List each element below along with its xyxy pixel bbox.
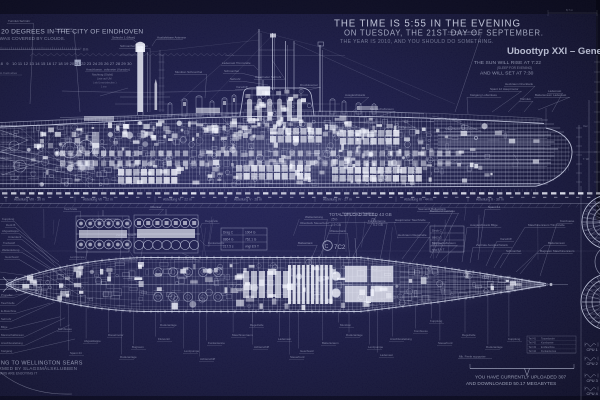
svg-text:Kupplung: Kupplung <box>430 319 443 323</box>
svg-text:PERFORMED BY SLAGSMÅLSKLUBBEN: PERFORMED BY SLAGSMÅLSKLUBBEN <box>0 365 77 371</box>
svg-text:Bilge: Bilge <box>1 325 8 329</box>
svg-text:Ruderanlage: Ruderanlage <box>346 333 363 337</box>
svg-text:(SLEEP FOR EVENING): (SLEEP FOR EVENING) <box>497 66 532 70</box>
svg-text:Vorschiff: Vorschiff <box>500 237 512 241</box>
svg-text:26: 26 <box>104 61 109 66</box>
svg-text:Zentrale Spant 44: Zentrale Spant 44 <box>116 233 140 237</box>
svg-text:1 xxv: 1 xxv <box>101 86 107 89</box>
svg-text:27: 27 <box>110 61 115 66</box>
svg-text:Dieselmotor: Dieselmotor <box>108 333 123 337</box>
svg-text:762.1 G: 762.1 G <box>245 238 257 242</box>
svg-text:Ruderanlage: Ruderanlage <box>160 323 177 327</box>
svg-text:Maschinenraum: Maschinenraum <box>232 333 253 337</box>
svg-text:Anschlussleitung: Anschlussleitung <box>175 257 196 261</box>
svg-text:20: 20 <box>70 61 75 66</box>
svg-text:Wassertank: Wassertank <box>330 229 346 233</box>
svg-text:Funkantenne: Funkantenne <box>541 349 557 353</box>
svg-text:( als Umsetzbecken ): ( als Umsetzbecken ) <box>93 82 117 85</box>
svg-text:Turmluk Sehrohr: Turmluk Sehrohr <box>8 19 30 23</box>
svg-text:Abgasklappe: Abgasklappe <box>84 339 101 343</box>
svg-text:Abgasklappe: Abgasklappe <box>1 124 18 128</box>
svg-text:AND DOWNLOADED 50.17 MEGABYTES: AND DOWNLOADED 50.17 MEGABYTES <box>466 381 556 386</box>
svg-text:Flutventil: Flutventil <box>158 337 170 341</box>
svg-text:Teil 41: Teil 41 <box>529 337 537 341</box>
svg-text:CPU 4: CPU 4 <box>587 392 598 396</box>
svg-text:Lademast Trimmzelle: Lademast Trimmzelle <box>222 61 251 65</box>
svg-text:Tauchzelle: Tauchzelle <box>64 207 78 211</box>
svg-text:ON TUESDAY, THE 21ST DAY OF SE: ON TUESDAY, THE 21ST DAY OF SEPTEMBER. <box>344 29 544 38</box>
svg-text:Abteilung IV · 27 m: Abteilung IV · 27 m <box>323 198 352 202</box>
svg-text:Sehrohr: Sehrohr <box>230 77 241 81</box>
svg-text:Regelzelle: Regelzelle <box>462 333 476 337</box>
svg-text:Drag C: Drag C <box>223 231 234 235</box>
svg-text:Anschlussm. voltmeter (Vorschn: Anschlussm. voltmeter (Vorschn) <box>86 68 130 72</box>
svg-text:CPU 2: CPU 2 <box>587 362 598 366</box>
svg-text:Steuerbord: Steuerbord <box>290 355 305 359</box>
svg-text:28: 28 <box>116 61 121 66</box>
svg-text:16: 16 <box>47 61 52 66</box>
svg-text:A. Funk wires: A. Funk wires <box>0 71 18 75</box>
svg-text:THE YEAR IS 2010, AND YOU SHOU: THE YEAR IS 2010, AND YOU SHOULD DO SOME… <box>340 39 494 45</box>
svg-text:Geschuetz: Geschuetz <box>5 255 19 259</box>
svg-text:Munition: Munition <box>340 323 351 327</box>
svg-text:T. Wl: T. Wl <box>583 157 589 161</box>
svg-text:AND WILL SET AT 7:30: AND WILL SET AT 7:30 <box>480 71 534 77</box>
svg-text:CPU 3: CPU 3 <box>587 379 598 383</box>
svg-text:10: 10 <box>12 61 17 66</box>
svg-text:Abteilung VIII · 30 m: Abteilung VIII · 30 m <box>14 198 45 202</box>
svg-text:Kombuese: Kombuese <box>414 329 428 333</box>
svg-text:Druckkoerper: Druckkoerper <box>300 83 318 87</box>
svg-text:Kielgang: Kielgang <box>1 349 13 353</box>
svg-text:Ruderanlage: Ruderanlage <box>486 345 503 349</box>
svg-text:Bugraum Maschinenraum: Bugraum Maschinenraum <box>540 249 575 253</box>
svg-text:Munition Schnorchel: Munition Schnorchel <box>175 70 203 74</box>
svg-text:Ausgleichstank Bilge: Ausgleichstank Bilge <box>470 223 498 227</box>
svg-text:Dieselmotor: Dieselmotor <box>1 164 16 168</box>
svg-text:Hauptmotor Tauchzelle: Hauptmotor Tauchzelle <box>395 218 426 222</box>
svg-text:Ruderanlage: Ruderanlage <box>120 355 137 359</box>
svg-text:Wassertank: Wassertank <box>1 148 17 152</box>
svg-text:E-Maschine: E-Maschine <box>120 257 135 261</box>
svg-text:Funkantenne: Funkantenne <box>55 27 73 31</box>
svg-text:1004 G: 1004 G <box>245 231 256 235</box>
svg-text:Lademast: Lademast <box>380 353 393 357</box>
svg-text:Tauchzelle: Tauchzelle <box>1 301 15 305</box>
svg-text:Lenzpumpe: Lenzpumpe <box>70 255 85 259</box>
svg-text:Ballasttank: Ballasttank <box>298 241 313 245</box>
svg-text:Mannschaftsraum: Mannschaftsraum <box>1 333 25 337</box>
svg-text:Geschuetz Flutventil: Geschuetz Flutventil <box>330 125 358 129</box>
svg-text:Heckraum Regelzelle: Heckraum Regelzelle <box>398 233 427 237</box>
svg-text:8 m: 8 m <box>83 48 89 52</box>
svg-text:Nachtrag (Stybd): Nachtrag (Stybd) <box>92 73 113 77</box>
svg-text:Regelzelle: Regelzelle <box>250 323 264 327</box>
svg-text:22: 22 <box>81 61 86 66</box>
svg-text:21: 21 <box>75 61 80 66</box>
svg-text:Flak 20mm Treibstoff: Flak 20mm Treibstoff <box>448 30 476 34</box>
svg-text:Teil 42: Teil 42 <box>529 341 537 345</box>
svg-text:Oec: Oec <box>583 124 588 128</box>
svg-text:Geschuetz Getriebe: Geschuetz Getriebe <box>92 217 119 221</box>
svg-text:24: 24 <box>93 61 98 66</box>
svg-text:0.9 GB: 0.9 GB <box>331 223 341 227</box>
svg-text:Achterschiff: Achterschiff <box>254 345 269 349</box>
svg-text:Funkantenne: Funkantenne <box>208 241 225 245</box>
svg-text:Spant 44: Spant 44 <box>1 132 13 136</box>
svg-text:Geschuetz: Geschuetz <box>300 349 314 353</box>
svg-text:13: 13 <box>29 61 34 66</box>
svg-text:E-Maschine: E-Maschine <box>541 345 555 349</box>
svg-text:Wellenleitung: Wellenleitung <box>305 215 323 219</box>
svg-text:Deck C: Deck C <box>432 229 443 233</box>
svg-text:7C2: 7C2 <box>334 244 346 251</box>
svg-text:Abteilung VII · 22 m: Abteilung VII · 22 m <box>83 198 113 202</box>
svg-text:Olbunker: Olbunker <box>150 205 161 209</box>
svg-text:Getriebe: Getriebe <box>1 140 12 144</box>
svg-text:Steuerbord: Steuerbord <box>1 172 16 176</box>
svg-text:Deck B: Deck B <box>6 223 15 227</box>
svg-text:8864 G: 8864 G <box>223 238 234 242</box>
svg-text:15: 15 <box>41 61 46 66</box>
svg-text:Backbord Getriebe: Backbord Getriebe <box>430 209 455 213</box>
svg-text:YOU HAVE CURRENTLY UPLOADED 3: YOU HAVE CURRENTLY UPLOADED 307 <box>475 374 567 379</box>
svg-text:Schnorchel: Schnorchel <box>506 249 521 253</box>
svg-text:Kombuese: Kombuese <box>541 341 554 345</box>
svg-text:Maschinenraum Trimmzelle: Maschinenraum Trimmzelle <box>528 223 565 227</box>
svg-text:Schnorchel: Schnorchel <box>224 69 239 73</box>
svg-text:Batterieraum: Batterieraum <box>322 341 339 345</box>
svg-text:Funkantenne: Funkantenne <box>368 219 386 223</box>
svg-text:Spant 44: Spant 44 <box>488 205 500 209</box>
svg-text:217.5 s: 217.5 s <box>223 245 234 249</box>
svg-text:Funkantenne: Funkantenne <box>208 341 225 345</box>
svg-text:Oberdeck Steuerbord: Oberdeck Steuerbord <box>300 221 329 225</box>
svg-text:Anschlussleitung: Anschlussleitung <box>1 341 23 345</box>
svg-text:Steuerbord: Steuerbord <box>215 125 230 129</box>
svg-text:Ausfahrbare Antenne: Ausfahrbare Antenne <box>157 36 186 40</box>
svg-text:Abteilung VI · 22 m: Abteilung VI · 22 m <box>163 198 192 202</box>
svg-text:E-Maschine: E-Maschine <box>1 309 17 313</box>
svg-text:Unterdeck: Unterdeck <box>8 235 22 239</box>
svg-text:Mk. Feele supporter: Mk. Feele supporter <box>459 355 486 359</box>
svg-text:Abteilung V · 28 m: Abteilung V · 28 m <box>234 198 262 202</box>
svg-text:Munition: Munition <box>1 156 12 160</box>
svg-text:CPU 1: CPU 1 <box>587 348 598 352</box>
svg-text:Schnorchel Bugraum: Schnorchel Bugraum <box>120 44 149 48</box>
svg-text:vngl 8.9 T: vngl 8.9 T <box>245 245 259 249</box>
svg-text:Hauptruder Sehrohr: Hauptruder Sehrohr <box>255 75 282 79</box>
svg-text:Kielgang Lufteinlass: Kielgang Lufteinlass <box>470 93 497 97</box>
svg-text:Steuerbord: Steuerbord <box>438 341 453 345</box>
svg-text:Wellenleitung: Wellenleitung <box>2 248 20 252</box>
svg-text:Ausgleichstank: Ausgleichstank <box>345 93 366 97</box>
svg-text:MY EARS ARE ENJOYING IT: MY EARS ARE ENJOYING IT <box>0 371 37 375</box>
svg-text:Abgasklappe: Abgasklappe <box>2 229 19 233</box>
svg-text:Torpedorohr: Torpedorohr <box>260 117 276 121</box>
svg-text:Abteilung II · 30 m: Abteilung II · 30 m <box>476 198 504 202</box>
svg-text:5.2 GB: 5.2 GB <box>373 223 383 227</box>
svg-text:25%: 25% <box>331 218 338 222</box>
svg-text:Kombuese: Kombuese <box>58 327 72 331</box>
svg-text:Bugraum: Bugraum <box>132 345 144 349</box>
svg-text:12: 12 <box>24 61 29 66</box>
svg-text:Propeller: Propeller <box>1 293 13 297</box>
svg-text:Vorschiff: Vorschiff <box>236 85 248 89</box>
svg-text:Regelzelle: Regelzelle <box>205 219 219 223</box>
svg-text:23: 23 <box>87 61 92 66</box>
svg-text:Sehrohr: Sehrohr <box>1 317 11 321</box>
svg-text:Mannschaftsraum: Mannschaftsraum <box>370 107 394 111</box>
svg-text:Funkantenne: Funkantenne <box>398 125 416 129</box>
svg-text:C: C <box>325 244 329 250</box>
svg-text:30: 30 <box>127 61 132 66</box>
svg-text:Abteilung III · 44 m: Abteilung III · 44 m <box>404 198 433 202</box>
svg-text:29: 29 <box>121 61 126 66</box>
svg-text:Uboottyp XXI – Generalplan: Uboottyp XXI – Generalplan <box>507 46 600 57</box>
svg-text:Treibstoff: Treibstoff <box>3 241 15 245</box>
svg-text:Spant 44: Spant 44 <box>70 351 82 355</box>
svg-text:Heckraum Drucktank: Heckraum Drucktank <box>505 82 534 86</box>
svg-text:Steuerbord Torpedorohr: Steuerbord Torpedorohr <box>445 127 477 131</box>
svg-text:Lenzpumpe: Lenzpumpe <box>368 345 383 349</box>
svg-text:Batterieraum Lademast: Batterieraum Lademast <box>535 93 566 97</box>
svg-text:Sehrohr 1 (Mast): Sehrohr 1 (Mast) <box>112 36 135 40</box>
svg-text:17: 17 <box>52 61 57 66</box>
svg-text:Kombuese: Kombuese <box>560 219 575 223</box>
svg-text:8863 G: 8863 G <box>432 236 443 240</box>
svg-text:Torpedorohr: Torpedorohr <box>541 337 555 341</box>
svg-text:Teil 44: Teil 44 <box>529 349 537 353</box>
svg-text:18: 18 <box>58 61 63 66</box>
svg-text:Liste auf UM: Liste auf UM <box>97 77 112 81</box>
svg-text:Achterschiff: Achterschiff <box>200 357 215 361</box>
svg-text:Lenzpumpe: Lenzpumpe <box>184 349 199 353</box>
svg-text:Anschlussleitung: Anschlussleitung <box>390 337 412 341</box>
svg-text:8,7 m: 8,7 m <box>566 8 574 12</box>
svg-text:Zentrale Ausgleichstank: Zentrale Ausgleichstank <box>476 243 508 247</box>
svg-text:Spant 12 Hauptmotor: Spant 12 Hauptmotor <box>490 87 519 91</box>
svg-text:14: 14 <box>35 61 40 66</box>
svg-text:Kupplung: Kupplung <box>2 217 15 221</box>
svg-text:Lademast: Lademast <box>278 337 291 341</box>
svg-text:Teil 43: Teil 43 <box>529 345 537 349</box>
svg-text:25: 25 <box>98 61 103 66</box>
svg-text:Kupplung: Kupplung <box>508 337 521 341</box>
svg-text:Hauptmotor E-Maschine: Hauptmotor E-Maschine <box>342 211 375 215</box>
svg-text:19: 19 <box>64 61 69 66</box>
